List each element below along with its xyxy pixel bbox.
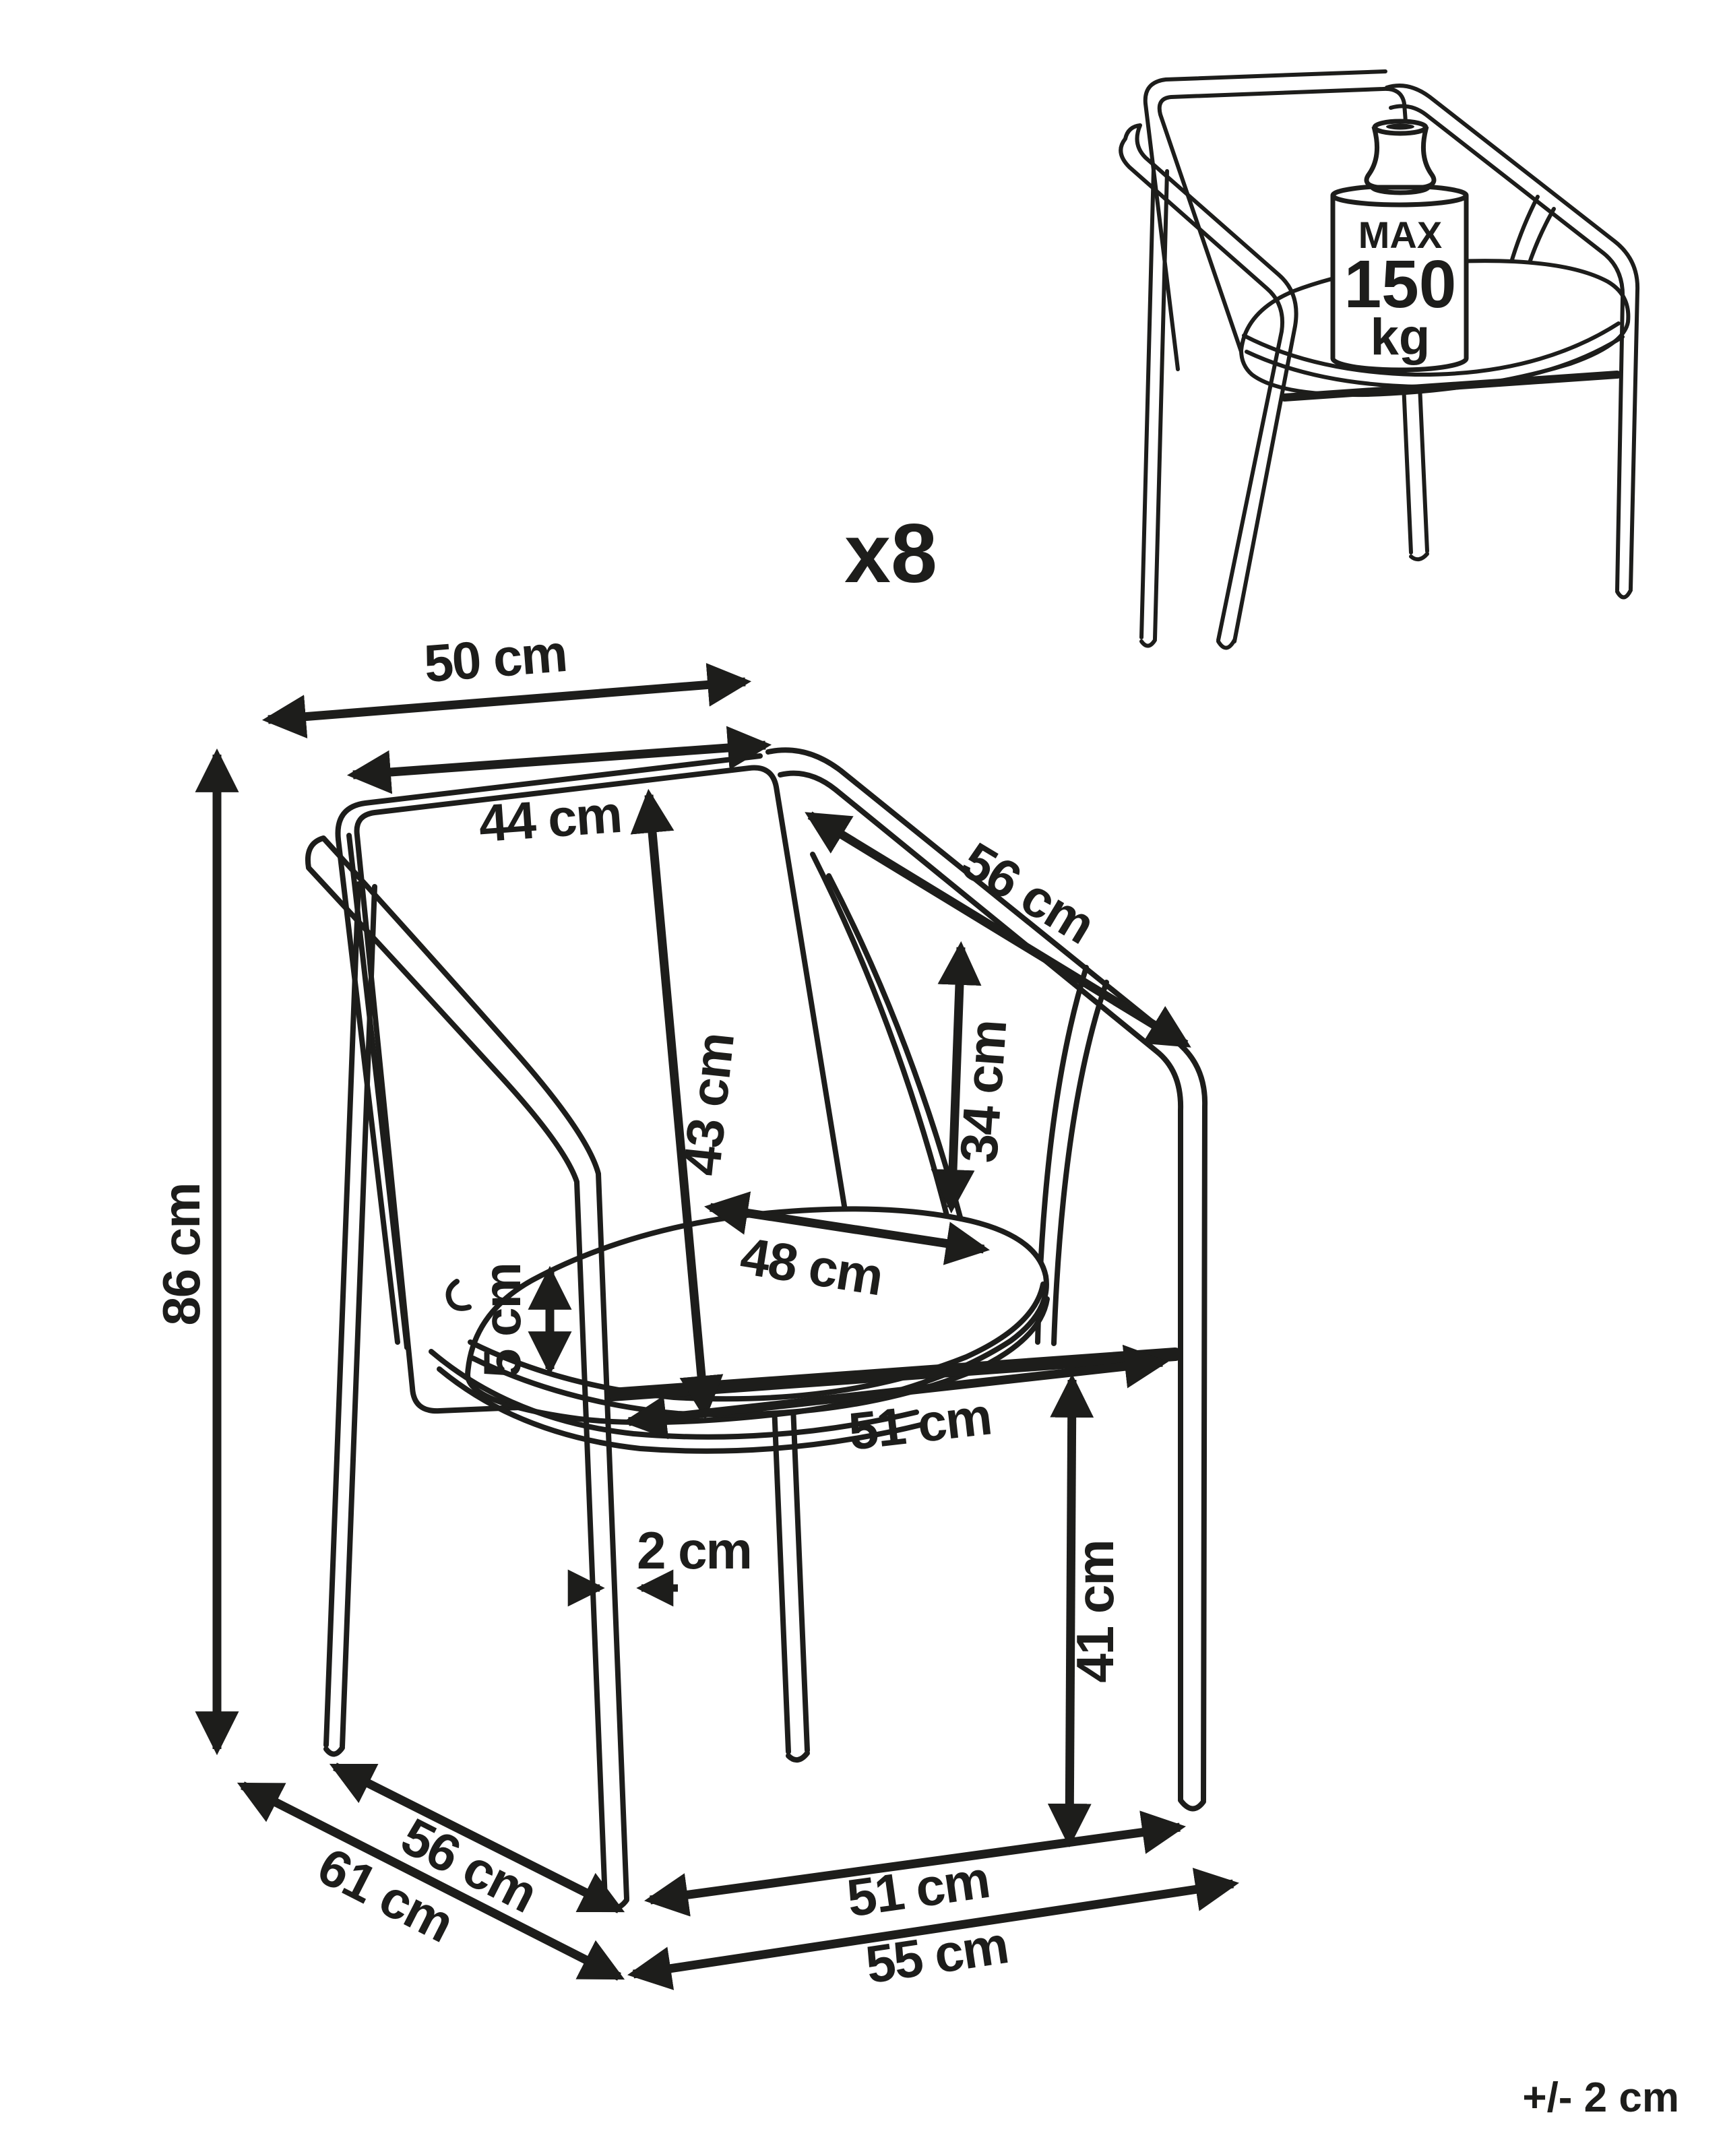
- dim-line: [268, 682, 745, 720]
- dim-label: 41 cm: [1065, 1540, 1125, 1682]
- dim-total-height: 86 cm: [152, 755, 217, 1749]
- max-load-line3: kg: [1371, 309, 1431, 366]
- dim-back-width: 50 cm: [268, 623, 745, 720]
- tolerance-note: +/- 2 cm: [1522, 2074, 1679, 2121]
- dim-label: 86 cm: [152, 1183, 211, 1325]
- weight-knob-hole: [1386, 124, 1414, 130]
- dim-armrest-length: 56 cm: [810, 815, 1186, 1044]
- dim-label: 2 cm: [637, 1521, 751, 1580]
- dim-label: 44 cm: [477, 784, 623, 854]
- dim-label: 56 cm: [952, 831, 1104, 955]
- diagram-canvas: MAX 150 kg x8 50 cm 44 cm 43 cm 56 cm 34…: [0, 0, 1725, 2156]
- dim-front-width: 51 cm: [650, 1827, 1180, 1928]
- arm-strut-2: [1054, 982, 1106, 1343]
- small-chair-drawing: MAX 150 kg: [1121, 71, 1637, 648]
- back-left-leg: [326, 884, 375, 1754]
- dim-label: 5 cm: [472, 1263, 532, 1378]
- dim-seat-height: 41 cm: [1065, 1380, 1125, 1841]
- weight-neck: [1367, 129, 1434, 187]
- small-back-right-leg: [1403, 369, 1427, 559]
- dim-label: 55 cm: [862, 1915, 1011, 1994]
- dim-armrest-height: 34 cm: [949, 947, 1018, 1207]
- dim-label: 51 cm: [844, 1849, 993, 1928]
- dim-leg-thickness: 2 cm: [570, 1521, 751, 1588]
- dim-label: 50 cm: [422, 623, 568, 693]
- quantity-label: x8: [844, 507, 937, 600]
- dim-label: 34 cm: [949, 1019, 1018, 1165]
- chair-dimension-diagram: MAX 150 kg x8 50 cm 44 cm 43 cm 56 cm 34…: [0, 0, 1725, 2156]
